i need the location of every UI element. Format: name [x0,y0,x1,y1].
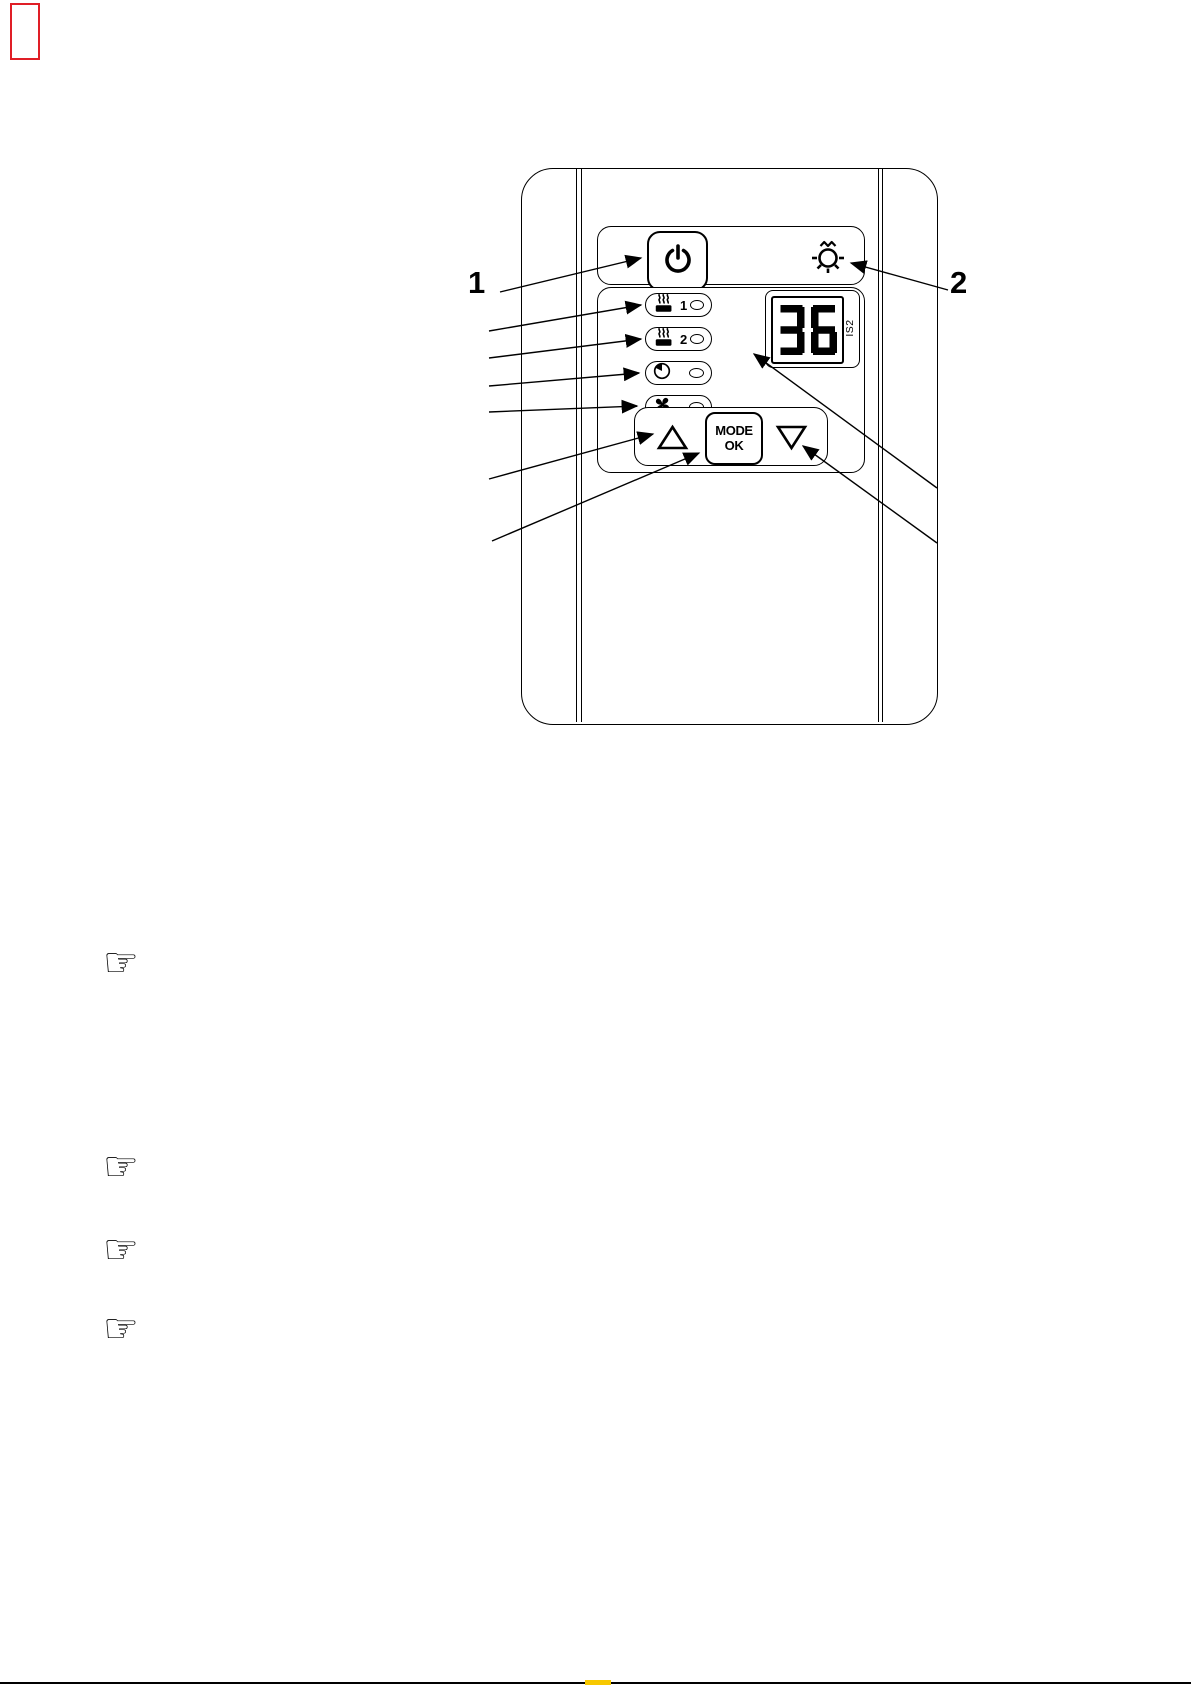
callout-label-1: 1 [468,267,485,298]
heater-icon [653,292,677,318]
down-button[interactable] [775,424,808,456]
up-triangle-icon [656,438,689,455]
panel-right-seam [878,169,879,722]
callout-label-2: 2 [950,267,967,298]
manual-page: { "page": { "background": "#ffffff" }, "… [0,0,1191,1685]
power-icon [661,242,695,281]
panel-right-seam [882,169,883,722]
panel-left-seam [581,169,582,722]
note-manicule-icon: ☞ [103,1147,139,1187]
heater-1-label: 1 [680,299,687,312]
led-indicator [689,368,704,378]
note-manicule-icon: ☞ [103,943,139,983]
display-side-label: IS2 [839,317,861,339]
clock-icon [653,362,671,385]
panel-left-seam [576,169,577,722]
mode-label: MODE [715,424,752,439]
temperature-display [771,296,844,364]
note-manicule-icon: ☞ [103,1230,139,1270]
heater-2-label: 2 [680,333,687,346]
power-button[interactable] [647,231,708,291]
page-bottom-highlight [585,1680,611,1685]
heater-icon [653,326,677,352]
led-indicator [690,334,704,344]
light-bulb-icon [805,232,851,283]
light-button[interactable] [805,234,851,280]
led-indicator [690,300,704,310]
indicator-heater-1[interactable]: 1 [645,293,712,317]
ok-label: OK [725,439,744,454]
pdf-link-box[interactable] [10,3,40,60]
indicator-timer[interactable] [645,361,712,385]
up-button[interactable] [656,424,689,456]
down-triangle-icon [775,438,808,455]
indicator-heater-2[interactable]: 2 [645,327,712,351]
mode-ok-button[interactable]: MODE OK [705,412,763,465]
note-manicule-icon: ☞ [103,1309,139,1349]
